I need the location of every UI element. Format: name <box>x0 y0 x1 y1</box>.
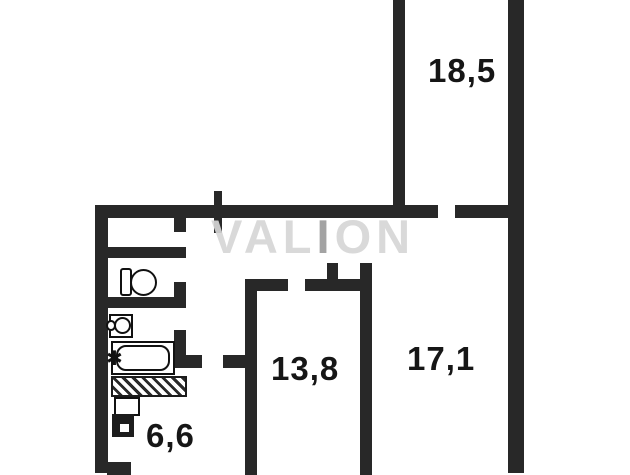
area-label-kitchen: 6,6 <box>146 419 195 452</box>
wall-room-top-left <box>393 0 405 218</box>
valion-watermark: VALION <box>211 213 415 260</box>
wall-bottom-stub <box>107 462 131 475</box>
bathtub-tap-icon: ✱ <box>106 348 123 368</box>
wall-stub-closet <box>174 218 186 232</box>
wall-stub-wc <box>174 282 186 297</box>
watermark-part-3: ON <box>335 210 416 263</box>
wall-stub-up-a <box>327 263 338 280</box>
area-label-room-top: 18,5 <box>428 54 496 87</box>
area-label-room-middle: 13,8 <box>271 352 339 385</box>
wall-outer-right <box>508 0 524 473</box>
watermark-part-2: I <box>317 210 335 263</box>
wall-divider-wc-bath <box>108 297 186 308</box>
wall-top-right-segment <box>455 205 508 218</box>
sink-tap-icon <box>106 320 116 331</box>
toilet-bowl-icon <box>130 269 157 296</box>
wall-room-mid-left <box>245 279 257 475</box>
wall-outer-left <box>95 205 108 473</box>
bathtub-inner-icon <box>116 345 170 371</box>
sink-bowl-icon <box>114 317 131 334</box>
area-label-room-right: 17,1 <box>407 342 475 375</box>
vent-shaft-icon <box>111 376 187 397</box>
floor-plan: ✱ 18,5 13,8 17,1 6,6 VALION <box>0 0 630 475</box>
wall-room-mid-top-a <box>245 279 288 291</box>
watermark-part-1: VAL <box>211 210 317 263</box>
wall-room-mid-right <box>360 263 372 475</box>
wall-divider-closet-wc <box>108 247 186 258</box>
wall-kitchen-left-piece <box>174 355 202 368</box>
heater-notch <box>120 424 129 432</box>
